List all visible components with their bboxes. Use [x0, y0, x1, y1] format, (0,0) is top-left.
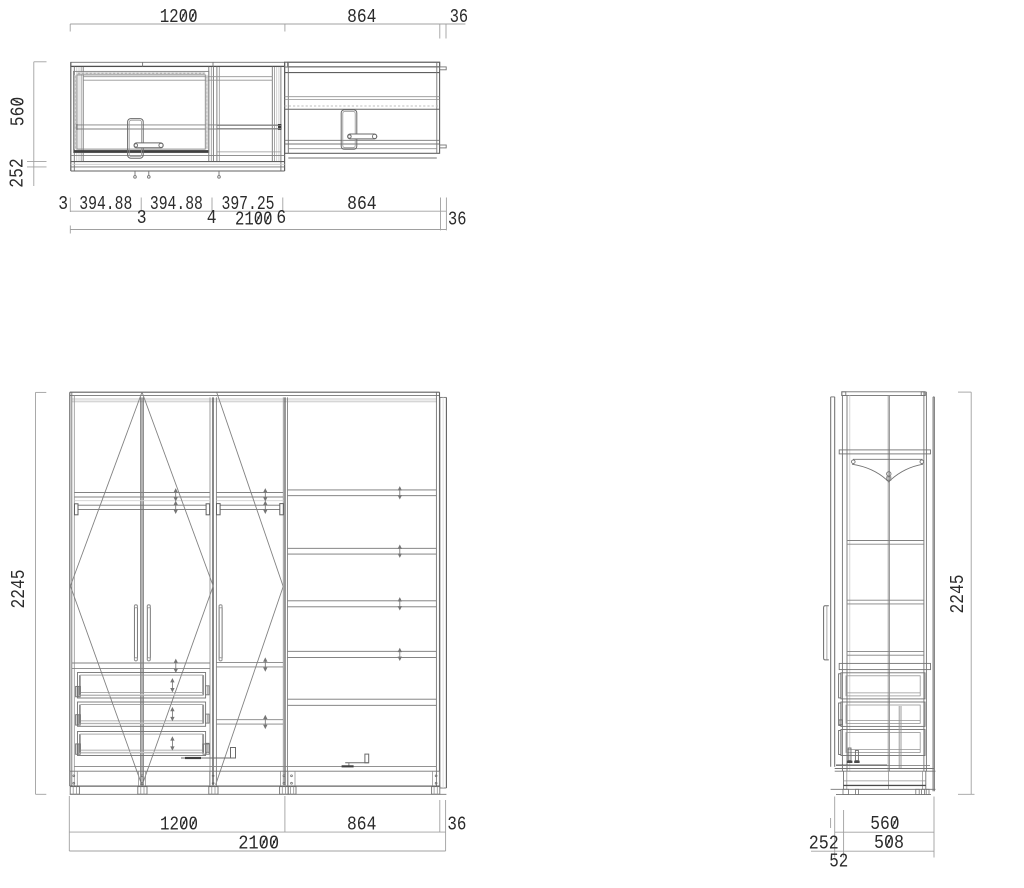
- svg-text:394.88: 394.88: [79, 193, 132, 215]
- svg-text:6: 6: [276, 207, 286, 229]
- svg-text:4: 4: [207, 207, 217, 229]
- svg-text:2245: 2245: [8, 570, 30, 609]
- svg-text:36: 36: [450, 6, 468, 28]
- svg-text:508: 508: [874, 832, 904, 854]
- svg-text:52: 52: [829, 850, 848, 872]
- svg-text:2245: 2245: [947, 575, 969, 614]
- svg-text:864: 864: [347, 814, 376, 836]
- svg-text:864: 864: [347, 193, 377, 215]
- svg-text:252: 252: [7, 158, 29, 188]
- svg-text:560: 560: [8, 97, 30, 127]
- svg-text:394.88: 394.88: [150, 193, 203, 215]
- svg-text:3: 3: [137, 207, 147, 229]
- svg-text:3: 3: [58, 193, 68, 215]
- svg-text:36: 36: [447, 814, 466, 836]
- svg-text:864: 864: [347, 6, 376, 28]
- svg-text:36: 36: [448, 208, 466, 230]
